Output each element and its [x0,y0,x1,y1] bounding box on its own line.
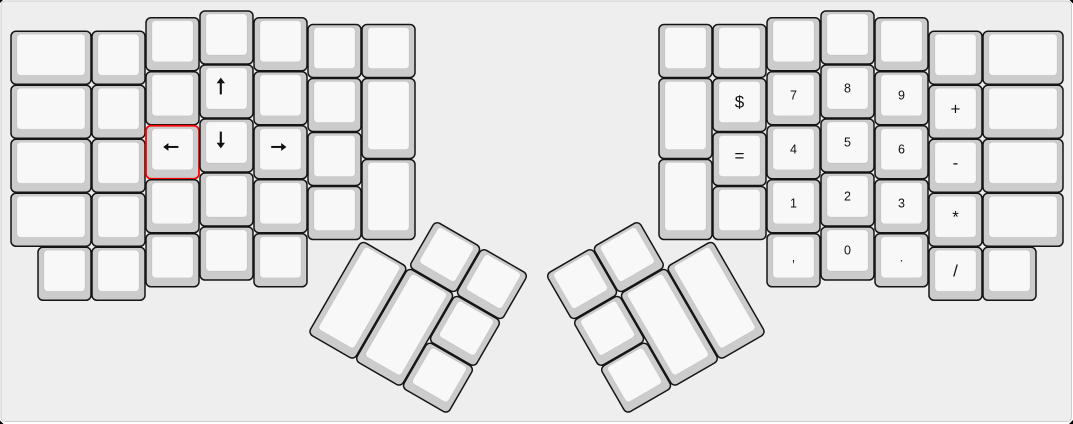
svg-text:$: $ [735,93,745,112]
svg-text:7: 7 [790,88,797,102]
svg-text:1: 1 [790,196,797,210]
svg-text:-: - [953,153,959,172]
svg-text:2: 2 [844,190,851,204]
svg-text:8: 8 [844,82,851,96]
svg-text:0: 0 [844,244,851,258]
svg-text:*: * [952,207,959,226]
svg-text:5: 5 [844,136,851,150]
svg-text:9: 9 [898,88,905,102]
svg-text:/: / [953,261,958,280]
svg-text:6: 6 [898,142,905,156]
svg-text:=: = [735,147,745,166]
svg-text:3: 3 [898,196,905,210]
svg-text:,: , [792,250,795,264]
svg-text:.: . [900,250,903,264]
svg-text:+: + [951,99,961,118]
svg-text:4: 4 [790,142,797,156]
